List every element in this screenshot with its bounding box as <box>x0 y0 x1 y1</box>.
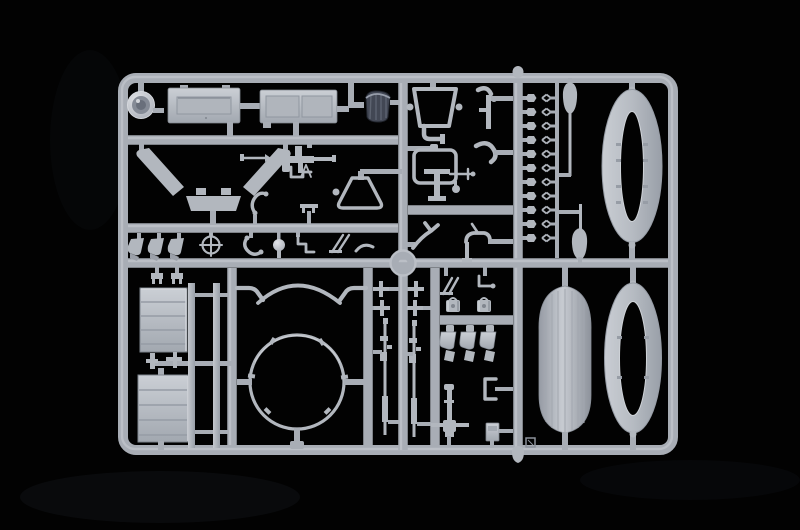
sprue-gate-knob-top <box>513 66 524 78</box>
panel-connector-stub <box>240 103 261 109</box>
fastener-rail <box>555 80 559 258</box>
ribbed-crate-panel-lower <box>138 368 188 450</box>
ribbed-crate-panel-upper <box>140 288 187 352</box>
sprue-photo <box>0 0 800 530</box>
sprue-illustration <box>0 0 800 530</box>
seat-trio <box>440 325 496 362</box>
